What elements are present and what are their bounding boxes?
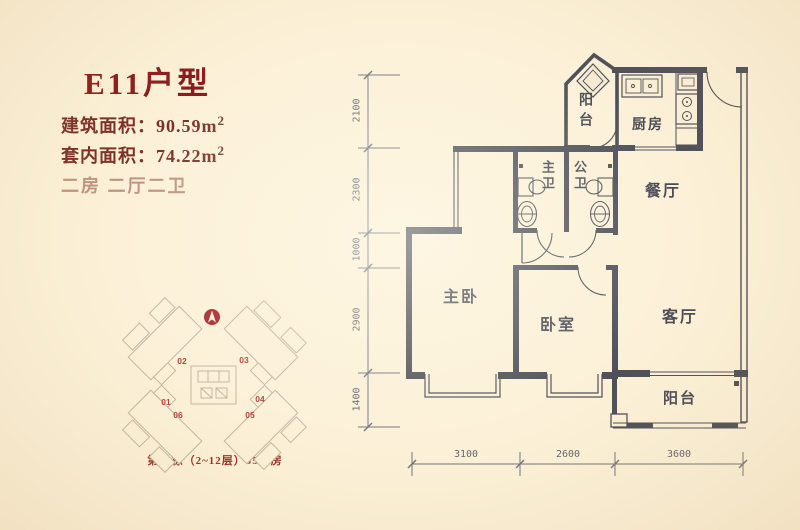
bath-bottom-wall-left bbox=[513, 228, 537, 233]
kitchen-top-wall bbox=[612, 67, 707, 73]
entry-door-arc bbox=[707, 72, 742, 107]
master-bay-window bbox=[425, 374, 500, 397]
site-core bbox=[191, 366, 236, 404]
balcony-door-arc bbox=[592, 123, 617, 148]
bedroom-door-arc bbox=[578, 267, 606, 295]
bath-bottom-wall-right bbox=[596, 228, 618, 233]
bottom-wall-seg2 bbox=[498, 372, 547, 379]
kitchen-bottom-wall-right bbox=[676, 145, 703, 151]
room-label-balcony-top: 阳台 bbox=[577, 92, 591, 132]
unit-label-04: 04 bbox=[255, 394, 265, 404]
bath-top-wall bbox=[453, 146, 618, 152]
dim-bottom-3100: 3100 bbox=[436, 449, 496, 460]
master-bath-sink bbox=[518, 178, 533, 196]
kitchen-slider-door bbox=[635, 147, 676, 150]
bedroom-top-wall-left bbox=[513, 265, 578, 270]
dim-left-2300: 2300 bbox=[352, 160, 363, 220]
kitchen-sink bbox=[622, 75, 662, 97]
unit-label-01: 01 bbox=[161, 397, 171, 407]
balcony-left-wall bbox=[612, 377, 617, 417]
bedroom-divider-wall bbox=[513, 265, 519, 378]
dim-bottom-3600: 3600 bbox=[649, 449, 709, 460]
bath-right-wall bbox=[613, 152, 618, 235]
master-left-wall bbox=[406, 227, 412, 379]
foyer-bottom-wall bbox=[406, 227, 462, 234]
balcony-slider-door bbox=[650, 372, 734, 376]
living-left-wall bbox=[612, 265, 618, 377]
site-map: 01 02 03 04 05 06 bbox=[117, 295, 309, 475]
foyer-window bbox=[454, 152, 458, 227]
floorplan-page: E11户型 建筑面积：90.59m2 套内面积：74.22m2 二房 二厅二卫 … bbox=[0, 0, 800, 530]
bath-left-wall bbox=[513, 152, 518, 232]
unit-label-05: 05 bbox=[245, 410, 255, 420]
dim-left-2900: 2900 bbox=[352, 290, 363, 350]
balcony-corner-dot bbox=[734, 381, 739, 386]
balcony-column bbox=[611, 414, 627, 427]
unit-label-03: 03 bbox=[239, 355, 249, 365]
fridge bbox=[678, 74, 698, 90]
dimension-lines bbox=[358, 71, 747, 476]
room-label-dining: 餐厅 bbox=[645, 184, 681, 200]
cabinet bbox=[676, 128, 698, 145]
unit-label-02: 02 bbox=[177, 356, 187, 366]
stove bbox=[676, 94, 698, 124]
room-label-kitchen: 厨房 bbox=[632, 119, 664, 133]
living-bottom-wall-right bbox=[734, 370, 748, 377]
dim-left-1400: 1400 bbox=[352, 370, 363, 430]
kitchen-fixtures bbox=[622, 73, 698, 145]
bedroom-bay-window bbox=[547, 374, 602, 397]
room-label-balcony-bottom: 阳台 bbox=[663, 392, 697, 407]
north-arrow-icon bbox=[204, 309, 220, 325]
room-label-public-bath: 公卫 bbox=[573, 160, 586, 192]
dim-bottom-2600: 2600 bbox=[538, 449, 598, 460]
dim-left-2100: 2100 bbox=[352, 81, 363, 141]
bottom-wall-seg1 bbox=[406, 372, 425, 379]
room-label-bedroom: 卧室 bbox=[540, 318, 576, 334]
right-exterior-wall bbox=[741, 70, 747, 422]
unit-label-06: 06 bbox=[173, 410, 183, 420]
public-bath-sink bbox=[598, 178, 613, 196]
living-bottom-wall-left bbox=[612, 370, 650, 377]
balcony-railing bbox=[613, 423, 746, 428]
bath-divider-wall bbox=[564, 152, 569, 232]
room-label-living: 客厅 bbox=[662, 310, 698, 326]
dim-left-1000: 1000 bbox=[352, 220, 363, 280]
room-label-master-bedroom: 主卧 bbox=[443, 290, 479, 306]
corridor-door bbox=[522, 233, 552, 263]
room-label-master-bath: 主卫 bbox=[541, 160, 554, 192]
public-bath-door-arc bbox=[569, 230, 596, 257]
